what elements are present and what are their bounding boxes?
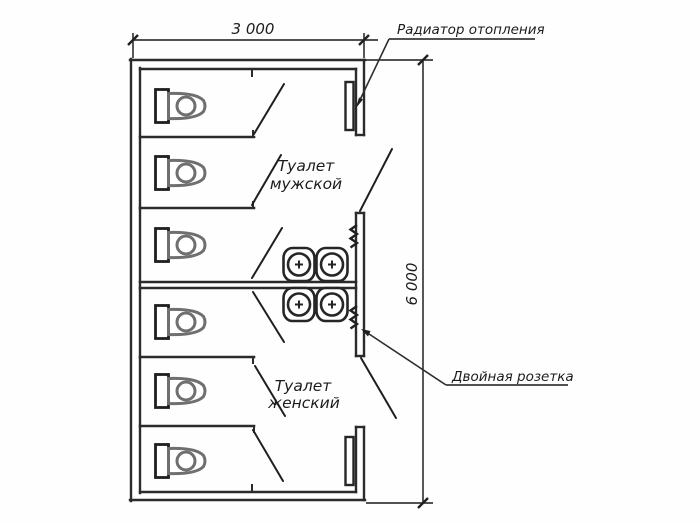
toilet-icon	[156, 229, 206, 262]
radiator-annotation: Радиатор отопления	[356, 22, 545, 108]
washbasin-icon	[317, 288, 348, 321]
radiator-icon	[346, 82, 354, 130]
room-label-men: Туалет мужской	[270, 157, 342, 193]
width-dimension: 3 000	[128, 20, 378, 58]
room-men-label-line1: Туалет	[278, 157, 336, 175]
radiators	[346, 82, 354, 485]
toilet-icon	[156, 375, 206, 408]
toilet-fixtures	[156, 90, 206, 478]
washbasin-icon	[284, 288, 315, 321]
washbasins	[284, 248, 348, 321]
radiator-annotation-label: Радиатор отопления	[397, 22, 545, 38]
toilet-icon	[156, 445, 206, 478]
height-dimension: 6 000	[366, 55, 433, 508]
width-dimension-label: 3 000	[232, 20, 275, 38]
toilet-icon	[156, 306, 206, 339]
height-dimension-label: 6 000	[403, 263, 421, 306]
floor-plan-drawing: 3 000 6 000 Радиатор отопления Двойная р…	[0, 0, 700, 523]
double-socket-annotation-label: Двойная розетка	[451, 369, 574, 385]
washbasin-icon	[284, 248, 315, 281]
radiator-icon	[346, 437, 354, 485]
room-men-label-line2: мужской	[270, 175, 342, 193]
toilet-icon	[156, 90, 206, 123]
room-women-label-line1: Туалет	[275, 377, 333, 395]
room-women-label-line2: женский	[267, 394, 340, 412]
room-label-women: Туалет женский	[267, 377, 340, 412]
double-socket-annotation: Двойная розетка	[361, 329, 574, 385]
toilet-icon	[156, 157, 206, 190]
washbasin-icon	[317, 248, 348, 281]
entrance-door-swings	[360, 149, 396, 418]
